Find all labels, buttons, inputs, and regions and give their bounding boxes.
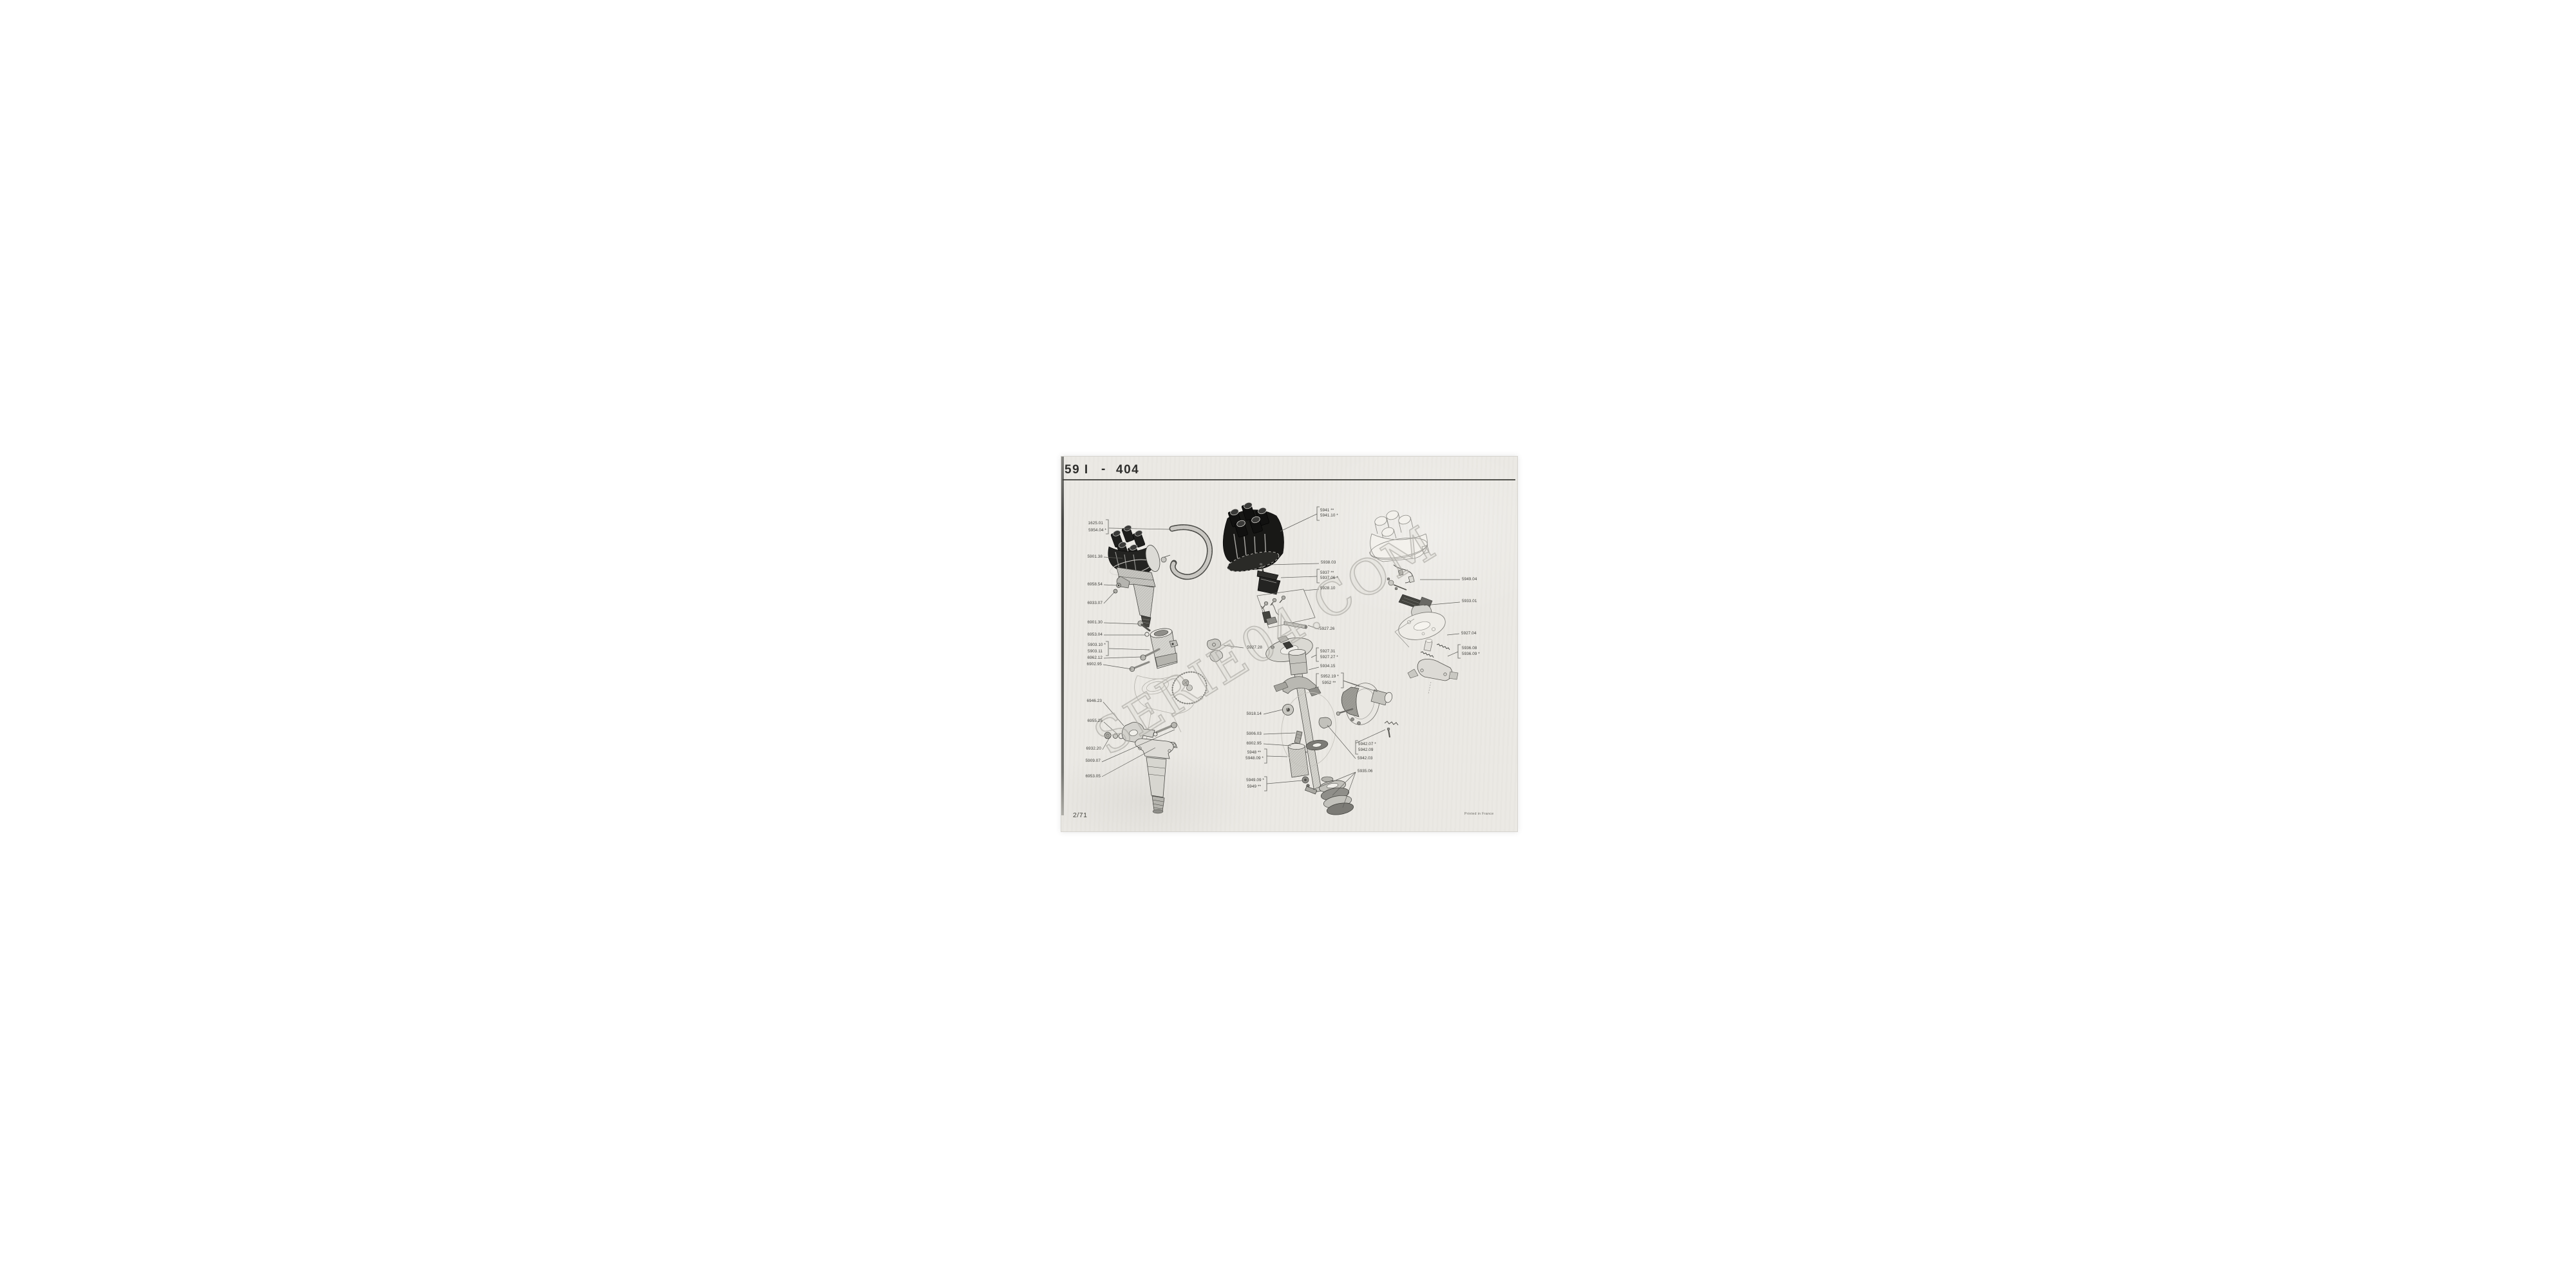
- part-label-5936.08: 5936.08: [1462, 646, 1477, 651]
- printed-in-note: Printed in France: [1464, 812, 1493, 816]
- part-label-5903.11: 5903.11: [1088, 649, 1103, 654]
- part-label-5952.19: 5952.19 *: [1321, 674, 1339, 679]
- part-label-6962.12: 6962.12: [1088, 656, 1103, 661]
- part-label-5909.07: 5909.07: [1086, 759, 1101, 764]
- part-label-5949.04: 5949.04: [1462, 577, 1477, 582]
- part-label-6955.25: 6955.25: [1088, 719, 1103, 724]
- part-label-6902.95: 6902.95: [1087, 662, 1102, 667]
- part-label-5927.28: 5927.28: [1247, 645, 1262, 650]
- part-label-5949.09: 5949.09 *: [1246, 778, 1264, 783]
- page-number: 2/71: [1073, 811, 1087, 819]
- part-label-5927.27: 5927.27 *: [1320, 655, 1338, 660]
- part-label-5933.01: 5933.01: [1462, 599, 1477, 604]
- part-label-6953.04: 6953.04: [1088, 632, 1103, 638]
- part-label-5938.03: 5938.03: [1321, 560, 1336, 565]
- part-label-5941: 5941 **: [1320, 508, 1334, 513]
- part-label-5918.14: 5918.14: [1247, 712, 1262, 717]
- part-label-5941.10: 5941.10 *: [1320, 513, 1338, 518]
- part-label-5948: 5948 **: [1247, 750, 1261, 755]
- part-label-6902.95: 6902.95: [1247, 741, 1262, 746]
- part-label-5928.10: 5928.10: [1320, 586, 1335, 591]
- part-label-5901.38: 5901.38: [1088, 554, 1103, 560]
- part-labels-layer: 1625.015954.04 *5901.386958.546933.07690…: [1061, 457, 1517, 831]
- part-label-5942.03: 5942.03: [1358, 756, 1372, 761]
- part-label-5936.09: 5936.09 *: [1462, 652, 1480, 657]
- part-label-1625.01: 1625.01: [1088, 521, 1103, 526]
- catalog-page: 59 I - 404: [1061, 456, 1518, 832]
- part-label-5954.04: 5954.04 *: [1088, 528, 1106, 533]
- part-label-5903.10: 5903.10 *: [1088, 643, 1106, 648]
- part-label-6953.05: 6953.05: [1086, 774, 1101, 779]
- part-label-5942.07: 5942.07 *: [1358, 742, 1376, 747]
- part-label-6901.30: 6901.30: [1088, 620, 1103, 625]
- part-label-6946.23: 6946.23: [1087, 699, 1102, 704]
- part-label-5942.09: 5942.09: [1358, 748, 1373, 753]
- part-label-6933.07: 6933.07: [1088, 601, 1103, 606]
- part-label-5937.06: 5937.06 *: [1320, 576, 1338, 581]
- part-label-5948.09: 5948.09 *: [1245, 756, 1264, 761]
- part-label-5927.31: 5927.31: [1320, 649, 1335, 654]
- part-label-5934.15: 5934.15: [1320, 664, 1335, 669]
- part-label-5927.26: 5927.26: [1320, 627, 1334, 632]
- part-label-5935.06: 5935.06: [1358, 769, 1372, 774]
- part-label-5927.04: 5927.04: [1461, 631, 1476, 636]
- part-label-5906.03: 5906.03: [1247, 732, 1262, 737]
- part-label-5949: 5949 **: [1247, 784, 1261, 790]
- part-label-5937: 5937 **: [1320, 571, 1334, 576]
- part-label-6932.20: 6932.20: [1086, 746, 1101, 752]
- part-label-6958.54: 6958.54: [1088, 582, 1103, 587]
- part-label-5952: 5952 **: [1322, 681, 1336, 686]
